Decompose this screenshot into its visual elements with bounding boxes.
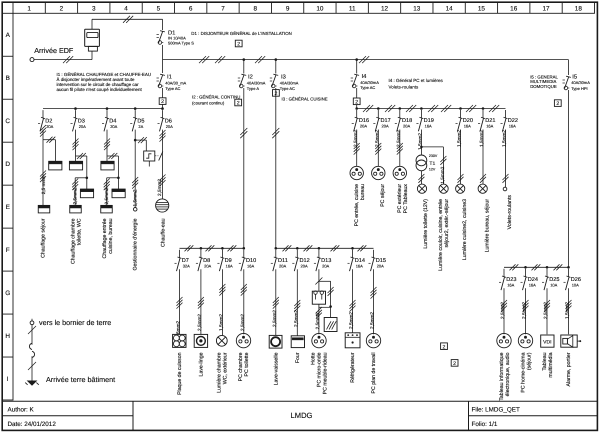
svg-text:I3 : GÉNÉRAL CUISINE: I3 : GÉNÉRAL CUISINE xyxy=(282,96,328,101)
svg-text:2,5mm2: 2,5mm2 xyxy=(315,312,320,329)
svg-text:16A: 16A xyxy=(356,264,363,269)
svg-text:2,5mm2: 2,5mm2 xyxy=(375,130,380,147)
svg-text:20A: 20A xyxy=(360,124,367,129)
svg-text:10A: 10A xyxy=(550,283,557,288)
svg-text:20A: 20A xyxy=(279,264,286,269)
svg-text:toilette, WC: toilette, WC xyxy=(76,218,82,245)
svg-text:15: 15 xyxy=(478,6,486,13)
svg-text:2,5mm2: 2,5mm2 xyxy=(240,314,245,331)
svg-text:2: 2 xyxy=(556,101,559,107)
svg-text:16A: 16A xyxy=(425,124,432,129)
svg-text:Plaque de cuisson: Plaque de cuisson xyxy=(177,352,183,395)
svg-text:Date: 24/01/2012: Date: 24/01/2012 xyxy=(8,421,57,428)
svg-text:2,5mm2: 2,5mm2 xyxy=(353,130,358,147)
svg-text:G: G xyxy=(5,290,10,297)
svg-text:multimédia: multimédia xyxy=(548,352,554,377)
svg-text:1,5mm2: 1,5mm2 xyxy=(133,189,138,206)
svg-text:20A: 20A xyxy=(79,124,86,129)
svg-text:32A: 32A xyxy=(183,264,190,269)
svg-text:WC, extérieur: WC, extérieur xyxy=(223,352,229,384)
svg-text:2: 2 xyxy=(355,99,358,105)
svg-text:A: A xyxy=(6,32,11,39)
svg-text:Type AC: Type AC xyxy=(165,86,180,91)
svg-text:Type HPI: Type HPI xyxy=(571,86,587,91)
svg-text:Type AC: Type AC xyxy=(360,85,375,90)
svg-text:2: 2 xyxy=(60,6,64,13)
svg-text:Author: K: Author: K xyxy=(8,406,35,413)
svg-text:VDI: VDI xyxy=(543,340,551,346)
svg-text:4: 4 xyxy=(124,6,128,13)
svg-text:2,5mm2: 2,5mm2 xyxy=(157,179,162,196)
svg-text:Type AC: Type AC xyxy=(280,86,295,91)
svg-text:16A: 16A xyxy=(226,264,233,269)
svg-text:Alarme, portier: Alarme, portier xyxy=(566,352,572,386)
svg-text:2,5mm2: 2,5mm2 xyxy=(104,187,109,204)
svg-text:2,5mm2: 2,5mm2 xyxy=(522,302,527,319)
svg-text:1,5mm2: 1,5mm2 xyxy=(502,130,507,147)
svg-text:PC toilette: PC toilette xyxy=(244,352,250,376)
svg-text:Four: Four xyxy=(295,352,301,363)
svg-text:Arrivée terre bâtiment: Arrivée terre bâtiment xyxy=(46,375,115,384)
svg-text:2,5mm2: 2,5mm2 xyxy=(272,310,277,327)
svg-text:17: 17 xyxy=(542,6,550,13)
svg-text:T1: T1 xyxy=(429,161,435,167)
svg-text:2,5mm2: 2,5mm2 xyxy=(73,187,78,204)
svg-text:DOMOTIQUE: DOMOTIQUE xyxy=(530,84,557,89)
svg-text:Lave-vaisselle: Lave-vaisselle xyxy=(273,352,279,385)
svg-text:14: 14 xyxy=(446,6,454,13)
svg-text:1,5mm2: 1,5mm2 xyxy=(457,130,462,147)
svg-text:6mm2: 6mm2 xyxy=(176,321,181,334)
svg-text:PC Tableaux: PC Tableaux xyxy=(403,184,409,214)
svg-text:2: 2 xyxy=(237,101,240,107)
svg-text:D1 : DISJONTEUR GÉNÉRAL de L'I: D1 : DISJONTEUR GÉNÉRAL de L'INSTALLATIO… xyxy=(191,31,292,36)
svg-text:20A: 20A xyxy=(301,264,308,269)
svg-text:I: I xyxy=(7,376,9,383)
svg-text:Arrivée EDF: Arrivée EDF xyxy=(34,46,74,55)
svg-text:8: 8 xyxy=(254,6,258,13)
svg-text:13: 13 xyxy=(413,6,421,13)
svg-text:16A: 16A xyxy=(247,264,254,269)
svg-text:2,5mm2: 2,5mm2 xyxy=(349,312,354,329)
svg-text:12: 12 xyxy=(381,6,389,13)
svg-text:20A: 20A xyxy=(403,124,410,129)
svg-text:6: 6 xyxy=(189,6,193,13)
svg-text:2: 2 xyxy=(443,344,446,350)
svg-text:Folio: 1/1: Folio: 1/1 xyxy=(472,421,498,428)
svg-text:Volets-roulants: Volets-roulants xyxy=(507,195,513,230)
svg-text:Gestionnaire d'énergie: Gestionnaire d'énergie xyxy=(133,218,139,270)
svg-text:Lumière toilette (12V): Lumière toilette (12V) xyxy=(423,199,429,249)
svg-text:10A: 10A xyxy=(572,283,579,288)
svg-text:2: 2 xyxy=(237,42,240,48)
svg-text:16A: 16A xyxy=(529,283,536,288)
svg-text:20A: 20A xyxy=(377,264,384,269)
svg-text:10: 10 xyxy=(316,6,324,13)
svg-text:E: E xyxy=(6,204,10,211)
svg-text:Lumière bureau, séjour: Lumière bureau, séjour xyxy=(485,199,491,253)
svg-text:2,5mm2: 2,5mm2 xyxy=(294,310,299,327)
svg-text:Chauffage séjour: Chauffage séjour xyxy=(40,218,46,258)
svg-text:Réfrigérateur: Réfrigérateur xyxy=(350,352,356,383)
svg-text:2,5mm2: 2,5mm2 xyxy=(197,314,202,331)
svg-text:Type A: Type A xyxy=(247,86,260,91)
svg-text:Chauffe-eau: Chauffe-eau xyxy=(160,218,166,247)
svg-text:500mA Type S: 500mA Type S xyxy=(168,41,194,46)
svg-text:2A: 2A xyxy=(138,124,143,129)
svg-text:vers le bornier de terre: vers le bornier de terre xyxy=(39,318,111,327)
svg-text:PC séjour: PC séjour xyxy=(380,184,386,207)
svg-text:File: LMDG_QET: File: LMDG_QET xyxy=(472,406,520,413)
svg-text:11: 11 xyxy=(349,6,356,13)
svg-text:Volets-roulants: Volets-roulants xyxy=(389,84,420,89)
svg-text:I3: I3 xyxy=(281,73,286,80)
svg-text:5: 5 xyxy=(157,6,161,13)
svg-text:I2: I2 xyxy=(248,73,253,80)
svg-text:H: H xyxy=(5,333,10,340)
svg-text:16A: 16A xyxy=(486,124,493,129)
svg-text:20A: 20A xyxy=(110,124,117,129)
svg-text:électronique, audio: électronique, audio xyxy=(505,352,511,396)
svg-text:1,5mm2: 1,5mm2 xyxy=(418,133,423,150)
svg-text:20A: 20A xyxy=(322,264,329,269)
svg-text:B: B xyxy=(6,75,10,82)
svg-text:1,5mm2: 1,5mm2 xyxy=(565,302,570,319)
svg-text:I1: I1 xyxy=(167,74,172,80)
svg-text:Lave-linge: Lave-linge xyxy=(199,352,205,376)
svg-text:20A: 20A xyxy=(166,124,173,129)
svg-text:2: 2 xyxy=(161,99,164,105)
svg-text:16A: 16A xyxy=(507,283,514,288)
svg-text:20A: 20A xyxy=(204,264,211,269)
svg-text:PC meuble-rideau: PC meuble-rideau xyxy=(323,352,329,394)
svg-text:2,5mm2: 2,5mm2 xyxy=(543,302,548,319)
svg-text:I4 : Général PC et lumières: I4 : Général PC et lumières xyxy=(389,78,444,83)
svg-text:230V: 230V xyxy=(429,154,438,158)
svg-text:I2 : GÉNÉRAL CONTINU: I2 : GÉNÉRAL CONTINU xyxy=(192,95,240,100)
svg-text:16: 16 xyxy=(510,6,518,13)
svg-text:12V: 12V xyxy=(429,167,436,171)
svg-text:2,5mm2: 2,5mm2 xyxy=(370,312,375,329)
svg-text:1,5mm2: 1,5mm2 xyxy=(440,166,445,183)
svg-text:1,5mm2: 1,5mm2 xyxy=(219,314,224,331)
svg-text:séjour2, extér.-séjour: séjour2, extér.-séjour xyxy=(444,199,450,248)
svg-text:40A/30mA: 40A/30mA xyxy=(571,80,590,85)
svg-text:(séjour): (séjour) xyxy=(527,352,533,370)
svg-text:1,5mm2: 1,5mm2 xyxy=(479,130,484,147)
svg-text:1: 1 xyxy=(27,6,31,13)
svg-text:2: 2 xyxy=(453,361,456,367)
svg-text:Lumière cuisine2, cuisine3: Lumière cuisine2, cuisine3 xyxy=(462,199,468,260)
svg-text:7: 7 xyxy=(221,6,225,13)
svg-text:C: C xyxy=(5,118,10,125)
svg-text:20A: 20A xyxy=(382,124,389,129)
svg-text:aucun fil pilote n'est coupé i: aucun fil pilote n'est coupé individuell… xyxy=(57,87,143,92)
svg-text:2,5mm2: 2,5mm2 xyxy=(396,130,401,147)
svg-text:LMDG: LMDG xyxy=(291,411,313,420)
svg-text:I4: I4 xyxy=(362,74,368,80)
svg-text:18: 18 xyxy=(575,6,583,13)
svg-text:2: 2 xyxy=(274,91,277,97)
svg-text:16A: 16A xyxy=(464,124,471,129)
svg-text:16A: 16A xyxy=(509,124,516,129)
svg-text:9: 9 xyxy=(286,6,290,13)
svg-text:D: D xyxy=(5,161,10,168)
svg-text:(courant continu): (courant continu) xyxy=(192,100,225,105)
svg-text:PC plan de travail: PC plan de travail xyxy=(371,353,377,394)
svg-text:F: F xyxy=(6,247,10,254)
svg-text:bureau: bureau xyxy=(360,184,366,200)
svg-text:2,5mm2: 2,5mm2 xyxy=(500,302,505,319)
svg-text:3: 3 xyxy=(92,6,96,13)
svg-text:2,5 mm2: 2,5 mm2 xyxy=(41,176,46,195)
svg-text:20A: 20A xyxy=(46,124,53,129)
svg-text:cuisine, bureau: cuisine, bureau xyxy=(108,218,114,253)
